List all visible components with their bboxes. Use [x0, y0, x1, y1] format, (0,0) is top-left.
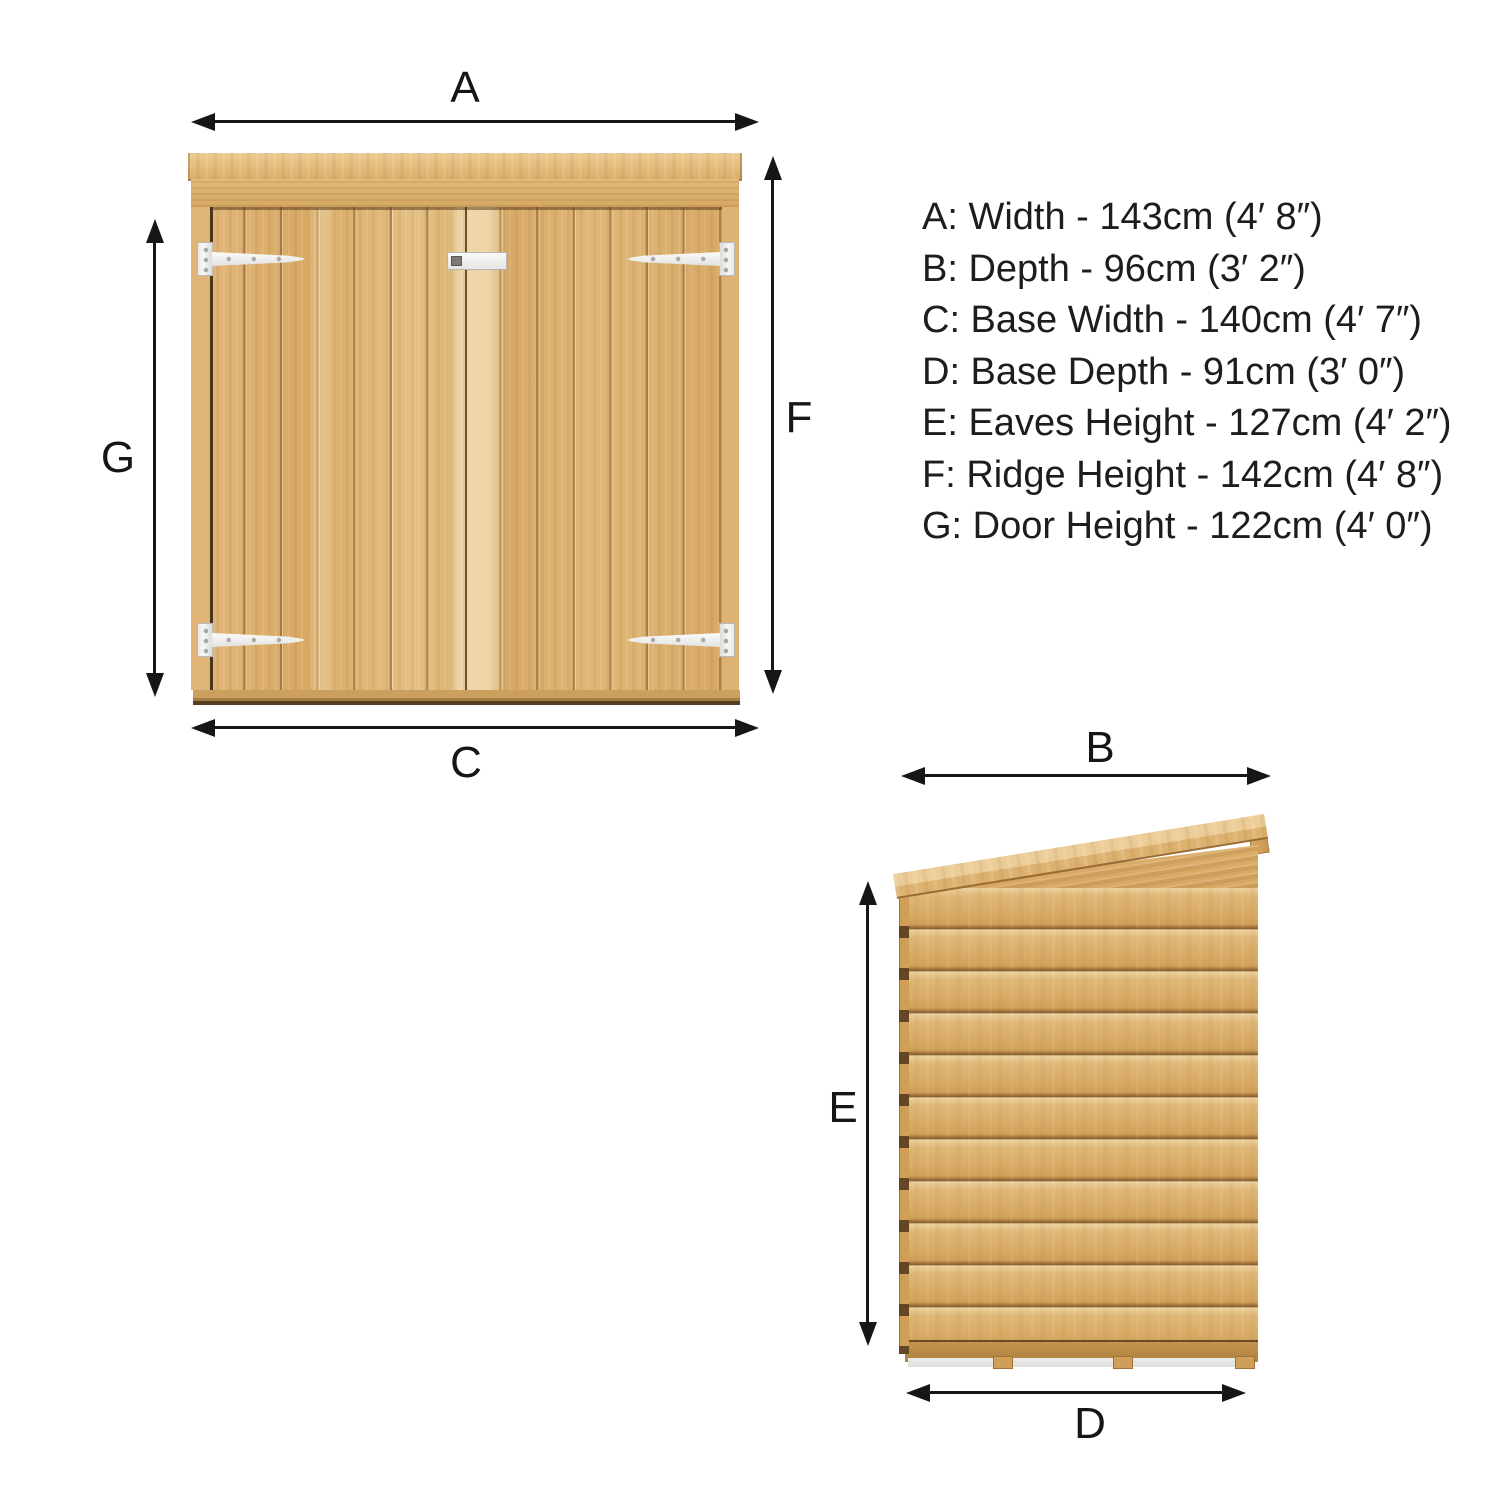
- hinge-bottom-left-icon: [197, 623, 307, 657]
- spec-line-depth: B: Depth - 96cm (3′ 2″): [922, 244, 1452, 296]
- dim-label-base-depth-d: D: [1074, 1399, 1106, 1449]
- hinge-strap: [212, 633, 305, 647]
- dim-label-base-width-c: C: [450, 738, 482, 788]
- shed-side-skid-feet: [908, 1358, 1253, 1367]
- hinge-plate: [719, 242, 735, 276]
- spec-line-door-height: G: Door Height - 122cm (4′ 0″): [922, 501, 1452, 553]
- spec-line-base-width: C: Base Width - 140cm (4′ 7″): [922, 295, 1452, 347]
- hinge-plate: [197, 242, 213, 276]
- shed-side-wall: [905, 843, 1258, 1362]
- shed-front-base-plinth: [193, 690, 740, 705]
- shed-side-cladding: [905, 888, 1258, 1362]
- shed-side-bearer-tab: [993, 1356, 1013, 1369]
- door-top-shadow-line: [210, 207, 722, 210]
- dim-arrow-ridge-height-f: [771, 179, 774, 671]
- wood-tint-overlay: [492, 207, 722, 690]
- dim-arrow-base-width-c: [214, 726, 736, 729]
- dim-label-ridge-height-f: F: [786, 393, 813, 443]
- dim-arrow-door-height-g: [153, 242, 156, 674]
- shed-front-fascia: [191, 179, 739, 209]
- shed-front-double-doors: [210, 207, 722, 690]
- dim-label-depth-b: B: [1085, 723, 1114, 773]
- shed-dimension-diagram: A: [0, 0, 1500, 1500]
- door-left-gap-line: [210, 207, 213, 690]
- dim-arrow-depth-b: [924, 774, 1248, 777]
- shed-side-plank-ends: [899, 896, 909, 1354]
- hinge-top-right-icon: [625, 242, 735, 276]
- door-center-gap-line: [465, 207, 467, 690]
- hinge-strap: [212, 252, 305, 266]
- door-latch-icon: [447, 252, 507, 270]
- hinge-top-left-icon: [197, 242, 307, 276]
- dim-label-eaves-height-e: E: [828, 1083, 857, 1133]
- latch-keep: [451, 256, 462, 266]
- wood-pale-streak: [305, 207, 339, 690]
- hinge-plate: [197, 623, 213, 657]
- dim-label-door-height-g: G: [101, 433, 135, 483]
- hinge-plate: [719, 623, 735, 657]
- dim-label-width-a: A: [450, 63, 479, 113]
- spec-line-ridge-height: F: Ridge Height - 142cm (4′ 8″): [922, 450, 1452, 502]
- hinge-strap: [627, 252, 720, 266]
- dim-arrow-width-a: [214, 120, 736, 123]
- shed-front-roof-cap: [188, 153, 742, 181]
- dimension-spec-list: A: Width - 143cm (4′ 8″) B: Depth - 96cm…: [922, 192, 1452, 553]
- spec-line-width: A: Width - 143cm (4′ 8″): [922, 192, 1452, 244]
- shed-side-bearer-tab: [1235, 1356, 1255, 1369]
- spec-line-eaves-height: E: Eaves Height - 127cm (4′ 2″): [922, 398, 1452, 450]
- dim-arrow-base-depth-d: [929, 1391, 1223, 1394]
- spec-line-base-depth: D: Base Depth - 91cm (3′ 0″): [922, 347, 1452, 399]
- shed-side-bearer-tab: [1113, 1356, 1133, 1369]
- hinge-bottom-right-icon: [625, 623, 735, 657]
- dim-arrow-eaves-height-e: [866, 904, 869, 1323]
- hinge-strap: [627, 633, 720, 647]
